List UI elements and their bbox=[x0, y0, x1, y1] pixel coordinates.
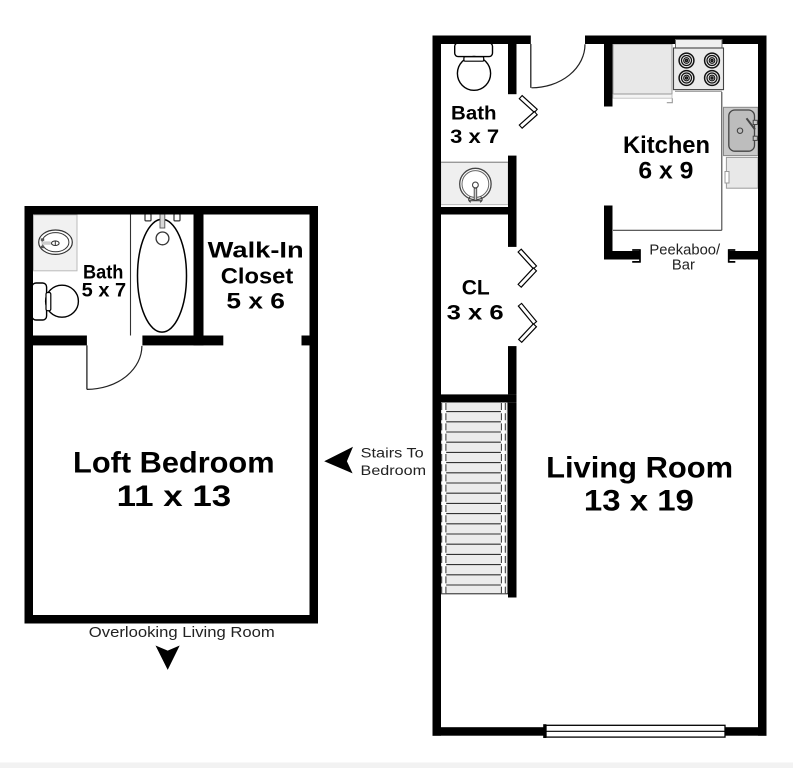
svg-text:Walk-In: Walk-In bbox=[208, 237, 304, 262]
svg-text:Living Room: Living Room bbox=[546, 452, 733, 485]
svg-text:Loft Bedroom: Loft Bedroom bbox=[73, 447, 275, 480]
svg-text:Kitchen: Kitchen bbox=[623, 132, 710, 159]
svg-text:5 x 6: 5 x 6 bbox=[226, 289, 285, 314]
svg-text:3 x 6: 3 x 6 bbox=[447, 302, 504, 325]
svg-text:13 x 19: 13 x 19 bbox=[584, 484, 694, 517]
svg-text:3 x 7: 3 x 7 bbox=[450, 126, 499, 148]
svg-text:Bedroom: Bedroom bbox=[361, 463, 427, 478]
svg-text:CL: CL bbox=[462, 277, 490, 300]
svg-text:Bath: Bath bbox=[451, 103, 497, 125]
svg-text:11 x 13: 11 x 13 bbox=[117, 480, 232, 513]
svg-text:Peekaboo/: Peekaboo/ bbox=[649, 242, 720, 258]
svg-text:Closet: Closet bbox=[221, 263, 294, 288]
svg-text:Overlooking Living Room: Overlooking Living Room bbox=[89, 624, 275, 641]
svg-text:6 x 9: 6 x 9 bbox=[638, 158, 693, 185]
svg-text:5 x 7: 5 x 7 bbox=[82, 280, 127, 302]
svg-text:Stairs To: Stairs To bbox=[361, 445, 424, 460]
svg-text:Bar: Bar bbox=[672, 257, 695, 273]
